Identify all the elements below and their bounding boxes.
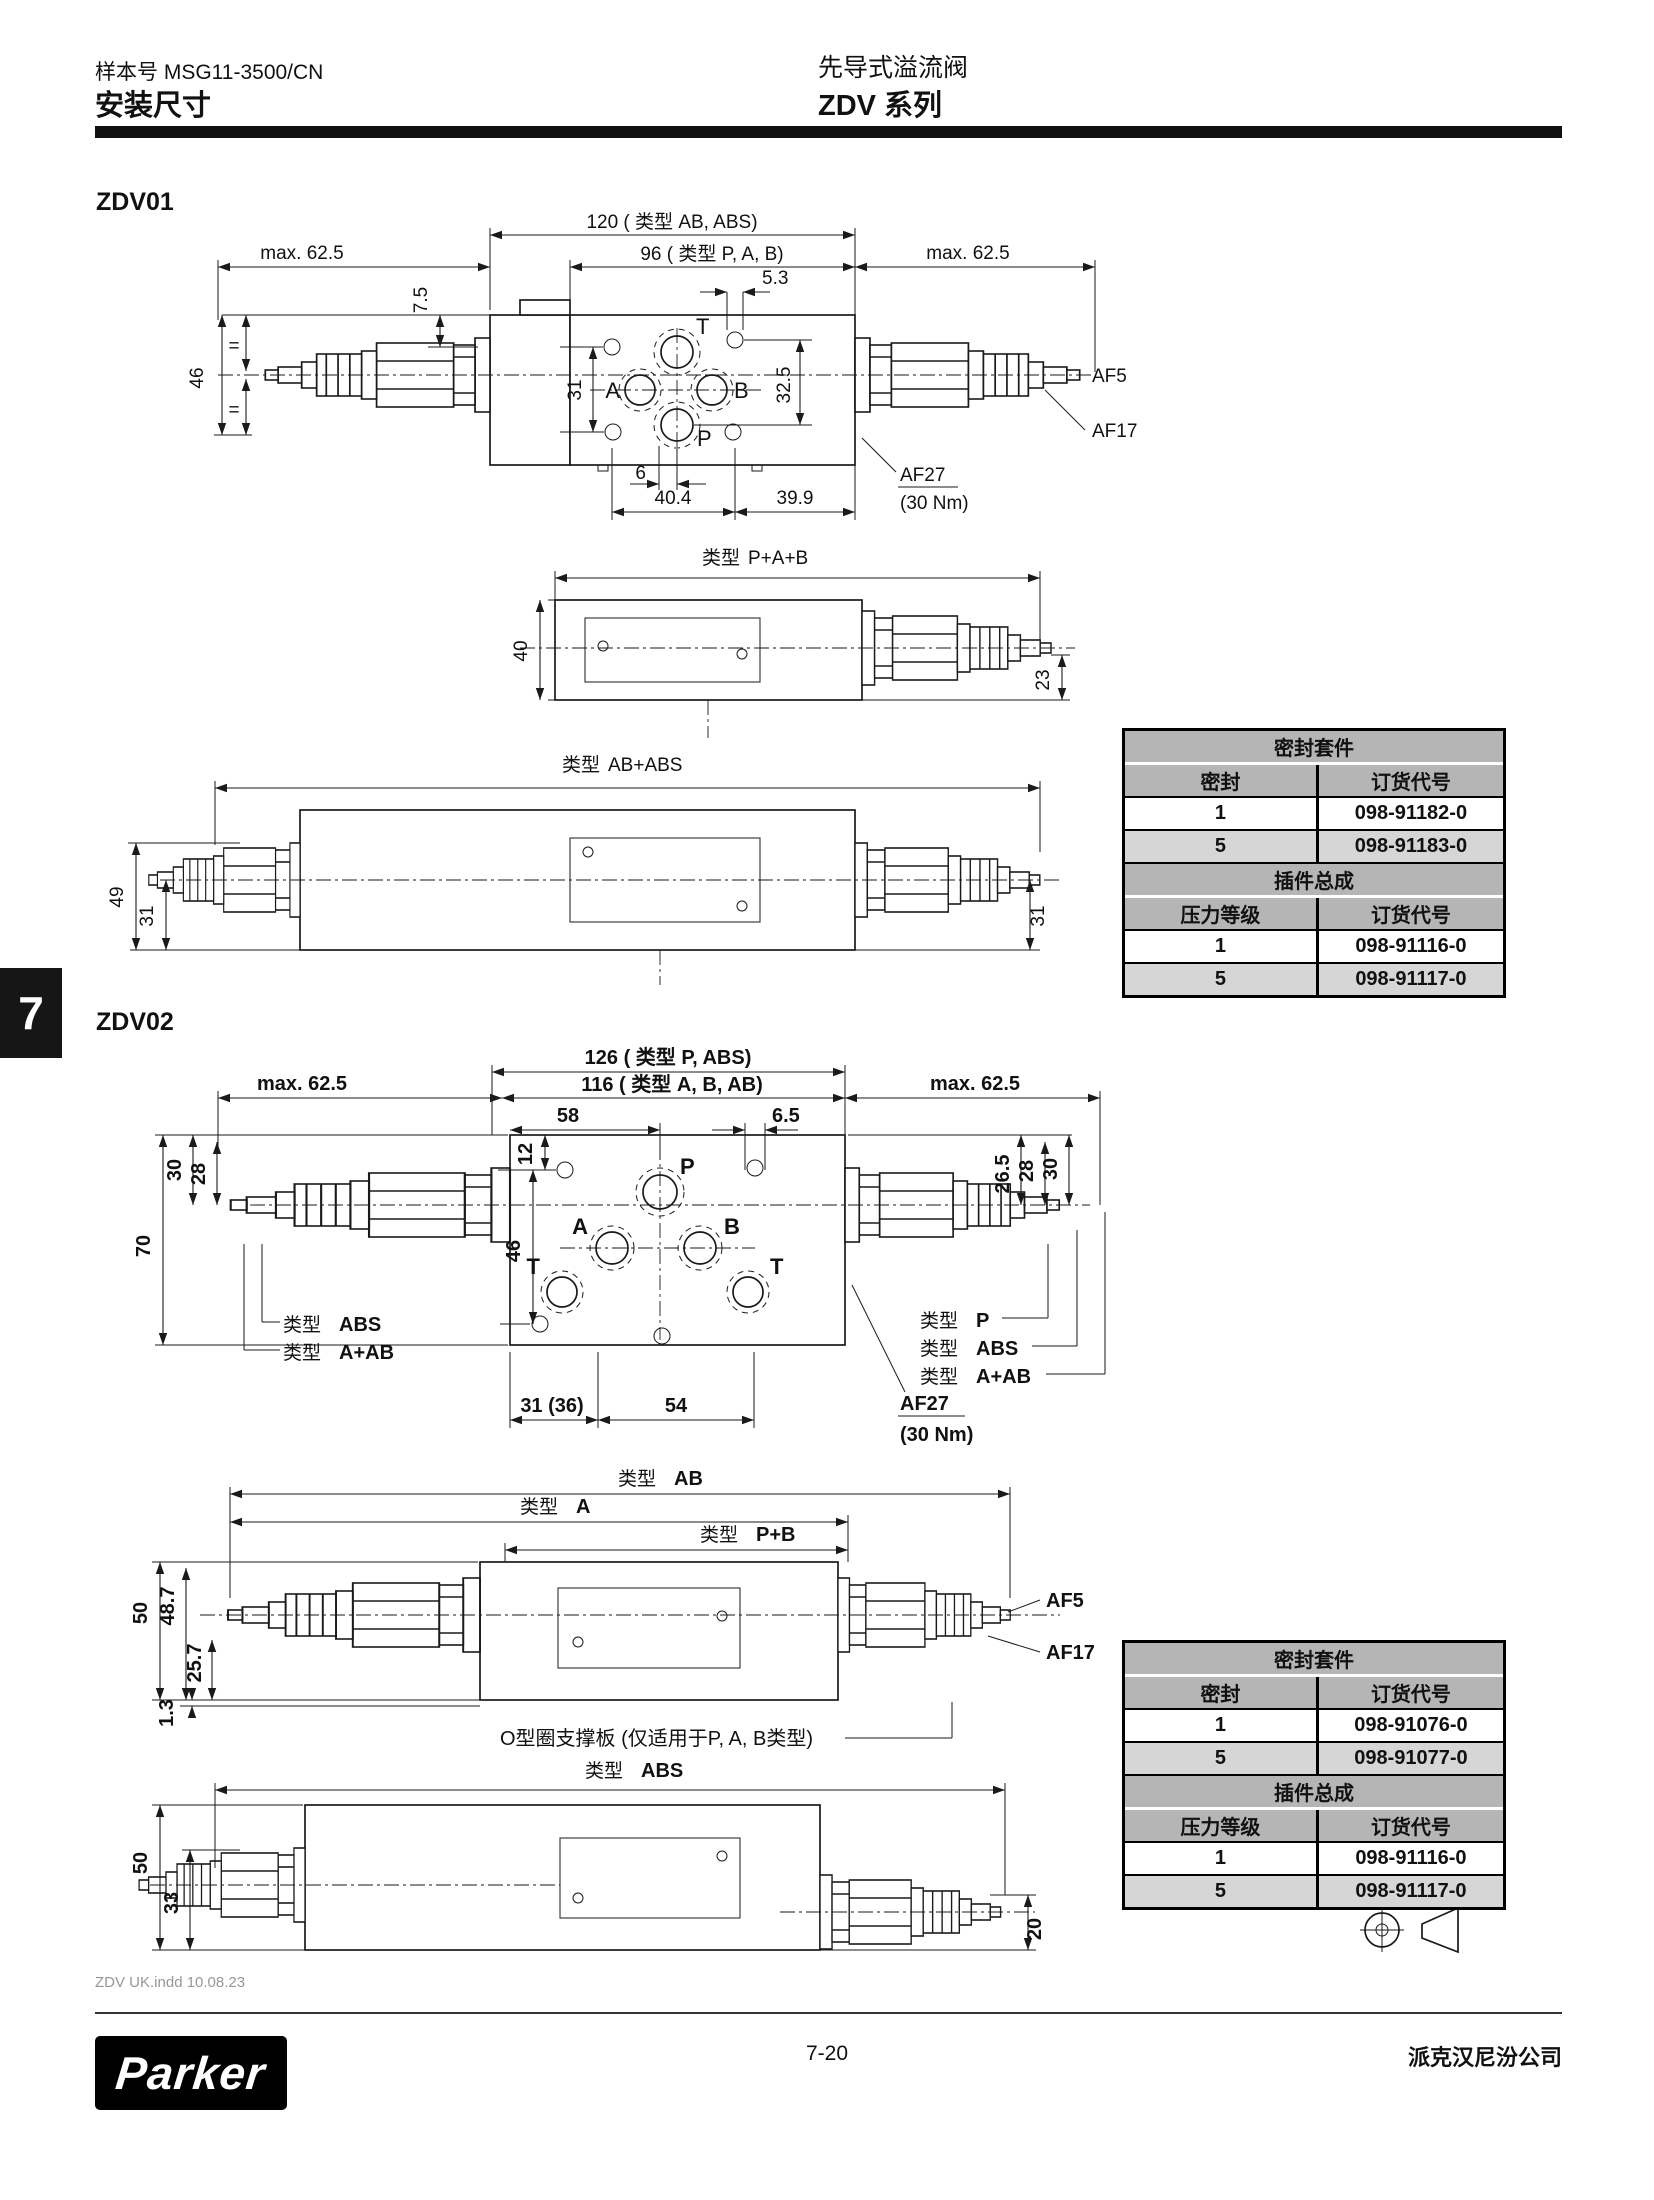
zdv01-view-pab: 类型 P+A+B 40 23 [511, 547, 1075, 738]
dim-31-left-label: 31 [137, 905, 158, 926]
port-p-label: P [697, 426, 712, 451]
label-a-prefix: 类型 [520, 1496, 558, 1518]
table-row: 5 098-91117-0 [1125, 964, 1503, 995]
dim-58-label: 58 [557, 1105, 579, 1127]
af27-callout2: AF27 [900, 1393, 949, 1415]
seal-qty: 1 [1125, 798, 1319, 829]
col-header-grade: 压力等级 [1125, 898, 1319, 929]
pressure-grade: 5 [1125, 964, 1319, 995]
order-code: 098-91077-0 [1319, 1747, 1503, 1770]
order-code: 098-91116-0 [1319, 1847, 1503, 1870]
dim-5-3-label: 5.3 [762, 268, 788, 289]
table-group-title: 插件总成 [1125, 864, 1503, 898]
seal-cartridge-icon [1360, 1908, 1458, 1952]
dim-30-left-label: 30 [164, 1159, 186, 1181]
dim-54-label: 54 [665, 1395, 688, 1417]
dim-31-36-label: 31 (36) [520, 1395, 583, 1417]
equal-mark-top: = [228, 336, 239, 357]
dim-max-right-label2: max. 62.5 [930, 1073, 1020, 1095]
col-header-seal: 密封 [1125, 765, 1319, 796]
col-header-code: 订货代号 [1319, 1811, 1503, 1840]
port-p-label2: P [680, 1154, 695, 1179]
product-name: 先导式溢流阀 [818, 48, 968, 84]
table-row: 1 098-91116-0 [1125, 931, 1503, 964]
seal-qty: 5 [1125, 831, 1319, 862]
type-ababs-value: AB+ABS [608, 755, 682, 776]
type-pab-prefix: 类型 [702, 547, 740, 569]
table-header-row: 密封 订货代号 [1125, 765, 1503, 798]
af17-callout: AF17 [1092, 421, 1137, 442]
order-code: 098-91182-0 [1319, 802, 1503, 825]
dim-48-7-label: 48.7 [157, 1587, 179, 1626]
file-note: ZDV UK.indd 10.08.23 [95, 1974, 245, 1991]
dim-30-right-label: 30 [1040, 1158, 1062, 1180]
table-row: 1 098-91076-0 [1125, 1710, 1503, 1743]
dim-126-label: 126 ( 类型 P, ABS) [585, 1046, 752, 1069]
dim-39-9-label: 39.9 [777, 488, 814, 509]
parker-logo: Parker [95, 2036, 287, 2110]
table-row: 1 098-91116-0 [1125, 1843, 1503, 1876]
af27-callout: AF27 [900, 465, 945, 486]
label-p-right-prefix: 类型 [920, 1310, 958, 1332]
dim-1-3-label: 1.3 [156, 1699, 178, 1727]
dim-31-label: 31 [565, 379, 586, 400]
label-aab-prefix: 类型 [283, 1342, 321, 1364]
dim-46-label: 46 [187, 367, 208, 388]
table-group-title: 插件总成 [1125, 1776, 1503, 1810]
label-abs-right-value: ABS [976, 1338, 1018, 1360]
label-abs-value: ABS [339, 1314, 381, 1336]
port-t-left-label: T [527, 1254, 541, 1279]
af5-callout: AF5 [1092, 366, 1127, 387]
equal-mark-bottom: = [228, 400, 239, 421]
port-b-label2: B [724, 1214, 740, 1239]
seal-qty: 1 [1125, 1710, 1319, 1741]
dim-23-label: 23 [1033, 669, 1054, 690]
table-group-title: 密封套件 [1125, 1643, 1503, 1677]
af5-callout2: AF5 [1046, 1590, 1084, 1612]
port-t-right-label: T [770, 1254, 784, 1279]
order-code: 098-91183-0 [1319, 835, 1503, 858]
table-row: 5 098-91117-0 [1125, 1876, 1503, 1907]
order-code: 098-91076-0 [1319, 1714, 1503, 1737]
header-rule [95, 126, 1562, 138]
label-abs-view-value: ABS [641, 1760, 683, 1782]
dim-28-right-label: 28 [1016, 1160, 1038, 1182]
dim-25-7-label: 25.7 [184, 1644, 206, 1683]
col-header-code: 订货代号 [1319, 1678, 1503, 1707]
dim-6-label: 6 [635, 463, 646, 484]
table-header-row: 压力等级 订货代号 [1125, 898, 1503, 931]
dim-50-label: 50 [130, 1602, 152, 1624]
page-number: 7-20 [757, 2042, 897, 2066]
page-title: 安装尺寸 [95, 82, 211, 124]
seal-qty: 5 [1125, 1743, 1319, 1774]
dim-28-left-label: 28 [188, 1163, 210, 1185]
port-a-label2: A [572, 1214, 588, 1239]
dim-96-label: 96 ( 类型 P, A, B) [640, 243, 783, 265]
dim-70-label: 70 [133, 1235, 155, 1257]
label-ab-prefix: 类型 [618, 1468, 656, 1490]
af17-callout2: AF17 [1046, 1642, 1095, 1664]
label-p-right-value: P [976, 1310, 989, 1332]
table-row: 1 098-91182-0 [1125, 798, 1503, 831]
label-aab-right-value: A+AB [976, 1366, 1031, 1388]
chapter-tab: 7 [0, 968, 62, 1058]
oring-support-note: O型圈支撑板 (仅适用于P, A, B类型) [500, 1727, 813, 1750]
dim-32-5-label: 32.5 [774, 367, 795, 404]
dim-49-label: 49 [107, 886, 128, 907]
table-header-row: 密封 订货代号 [1125, 1677, 1503, 1710]
dim-26-5-label: 26.5 [992, 1155, 1014, 1194]
zdv02-view-abs: 类型 ABS 50 33 20 [130, 1760, 1046, 1950]
af27-torque2: (30 Nm) [900, 1424, 973, 1446]
series-name: ZDV 系列 [818, 82, 942, 124]
order-table-zdv01: 密封套件 密封 订货代号 1 098-91182-0 5 098-91183-0… [1122, 728, 1506, 998]
dim-max-right-label: max. 62.5 [926, 243, 1009, 264]
pressure-grade: 1 [1125, 1843, 1319, 1874]
label-pb-value: P+B [756, 1524, 795, 1546]
pressure-grade: 5 [1125, 1876, 1319, 1907]
dim-40-4-label: 40.4 [655, 488, 692, 509]
type-ababs-prefix: 类型 [562, 754, 600, 776]
col-header-grade: 压力等级 [1125, 1810, 1319, 1841]
label-aab-value: A+AB [339, 1342, 394, 1364]
dim-33-label: 33 [161, 1892, 183, 1914]
af27-torque: (30 Nm) [900, 493, 969, 514]
label-aab-right-prefix: 类型 [920, 1366, 958, 1388]
zdv02-mounting-face-view: 126 ( 类型 P, ABS) 116 ( 类型 A, B, AB) max.… [133, 1046, 1105, 1446]
dim-40-label: 40 [511, 640, 532, 661]
zdv01-mounting-face-view: 120 ( 类型 AB, ABS) 96 ( 类型 P, A, B) max. … [187, 211, 1137, 520]
dim-6-5-label: 6.5 [772, 1105, 800, 1127]
company-name: 派克汉尼汾公司 [1408, 2040, 1562, 2072]
zdv02-view-ab: 类型 AB 类型 A 类型 P+B 50 48.7 25.7 1.3 AF5 A… [130, 1468, 1095, 1750]
table-group-title: 密封套件 [1125, 731, 1503, 765]
label-a-value: A [576, 1496, 590, 1518]
label-abs-view-prefix: 类型 [585, 1760, 623, 1782]
pressure-grade: 1 [1125, 931, 1319, 962]
table-row: 5 098-91077-0 [1125, 1743, 1503, 1776]
order-code: 098-91117-0 [1319, 968, 1503, 991]
dim-max-left-label2: max. 62.5 [257, 1073, 347, 1095]
port-b-label: B [734, 378, 749, 403]
dim-12-label: 12 [515, 1143, 537, 1165]
label-ab-value: AB [674, 1468, 703, 1490]
label-abs-prefix: 类型 [283, 1314, 321, 1336]
section-heading-zdv02: ZDV02 [96, 1008, 174, 1037]
port-a-label: A [605, 378, 620, 403]
footer-rule [95, 2012, 1562, 2014]
zdv01-view-ababs: 类型 AB+ABS 49 31 31 [107, 754, 1060, 985]
port-t-label: T [696, 314, 709, 339]
parker-logo-text: Parker [114, 2046, 269, 2100]
table-header-row: 压力等级 订货代号 [1125, 1810, 1503, 1843]
dim-116-label: 116 ( 类型 A, B, AB) [581, 1073, 763, 1096]
dim-31-right-label: 31 [1028, 905, 1049, 926]
section-heading-zdv01: ZDV01 [96, 188, 174, 217]
col-header-code: 订货代号 [1319, 899, 1503, 928]
dim-120-label: 120 ( 类型 AB, ABS) [586, 211, 757, 233]
table-row: 5 098-91183-0 [1125, 831, 1503, 864]
dim-7-5-label: 7.5 [411, 287, 432, 313]
order-code: 098-91116-0 [1319, 935, 1503, 958]
dim-46-label2: 46 [503, 1240, 525, 1262]
order-table-zdv02: 密封套件 密封 订货代号 1 098-91076-0 5 098-91077-0… [1122, 1640, 1506, 1910]
label-pb-prefix: 类型 [700, 1524, 738, 1546]
order-code: 098-91117-0 [1319, 1880, 1503, 1903]
catalog-page: 120 ( 类型 AB, ABS) 96 ( 类型 P, A, B) max. … [0, 0, 1654, 2200]
type-pab-value: P+A+B [748, 548, 808, 569]
dim-50-label2: 50 [130, 1852, 152, 1874]
col-header-seal: 密封 [1125, 1677, 1319, 1708]
label-abs-right-prefix: 类型 [920, 1338, 958, 1360]
dim-max-left-label: max. 62.5 [260, 243, 343, 264]
col-header-code: 订货代号 [1319, 766, 1503, 795]
dim-20-label: 20 [1024, 1918, 1046, 1940]
